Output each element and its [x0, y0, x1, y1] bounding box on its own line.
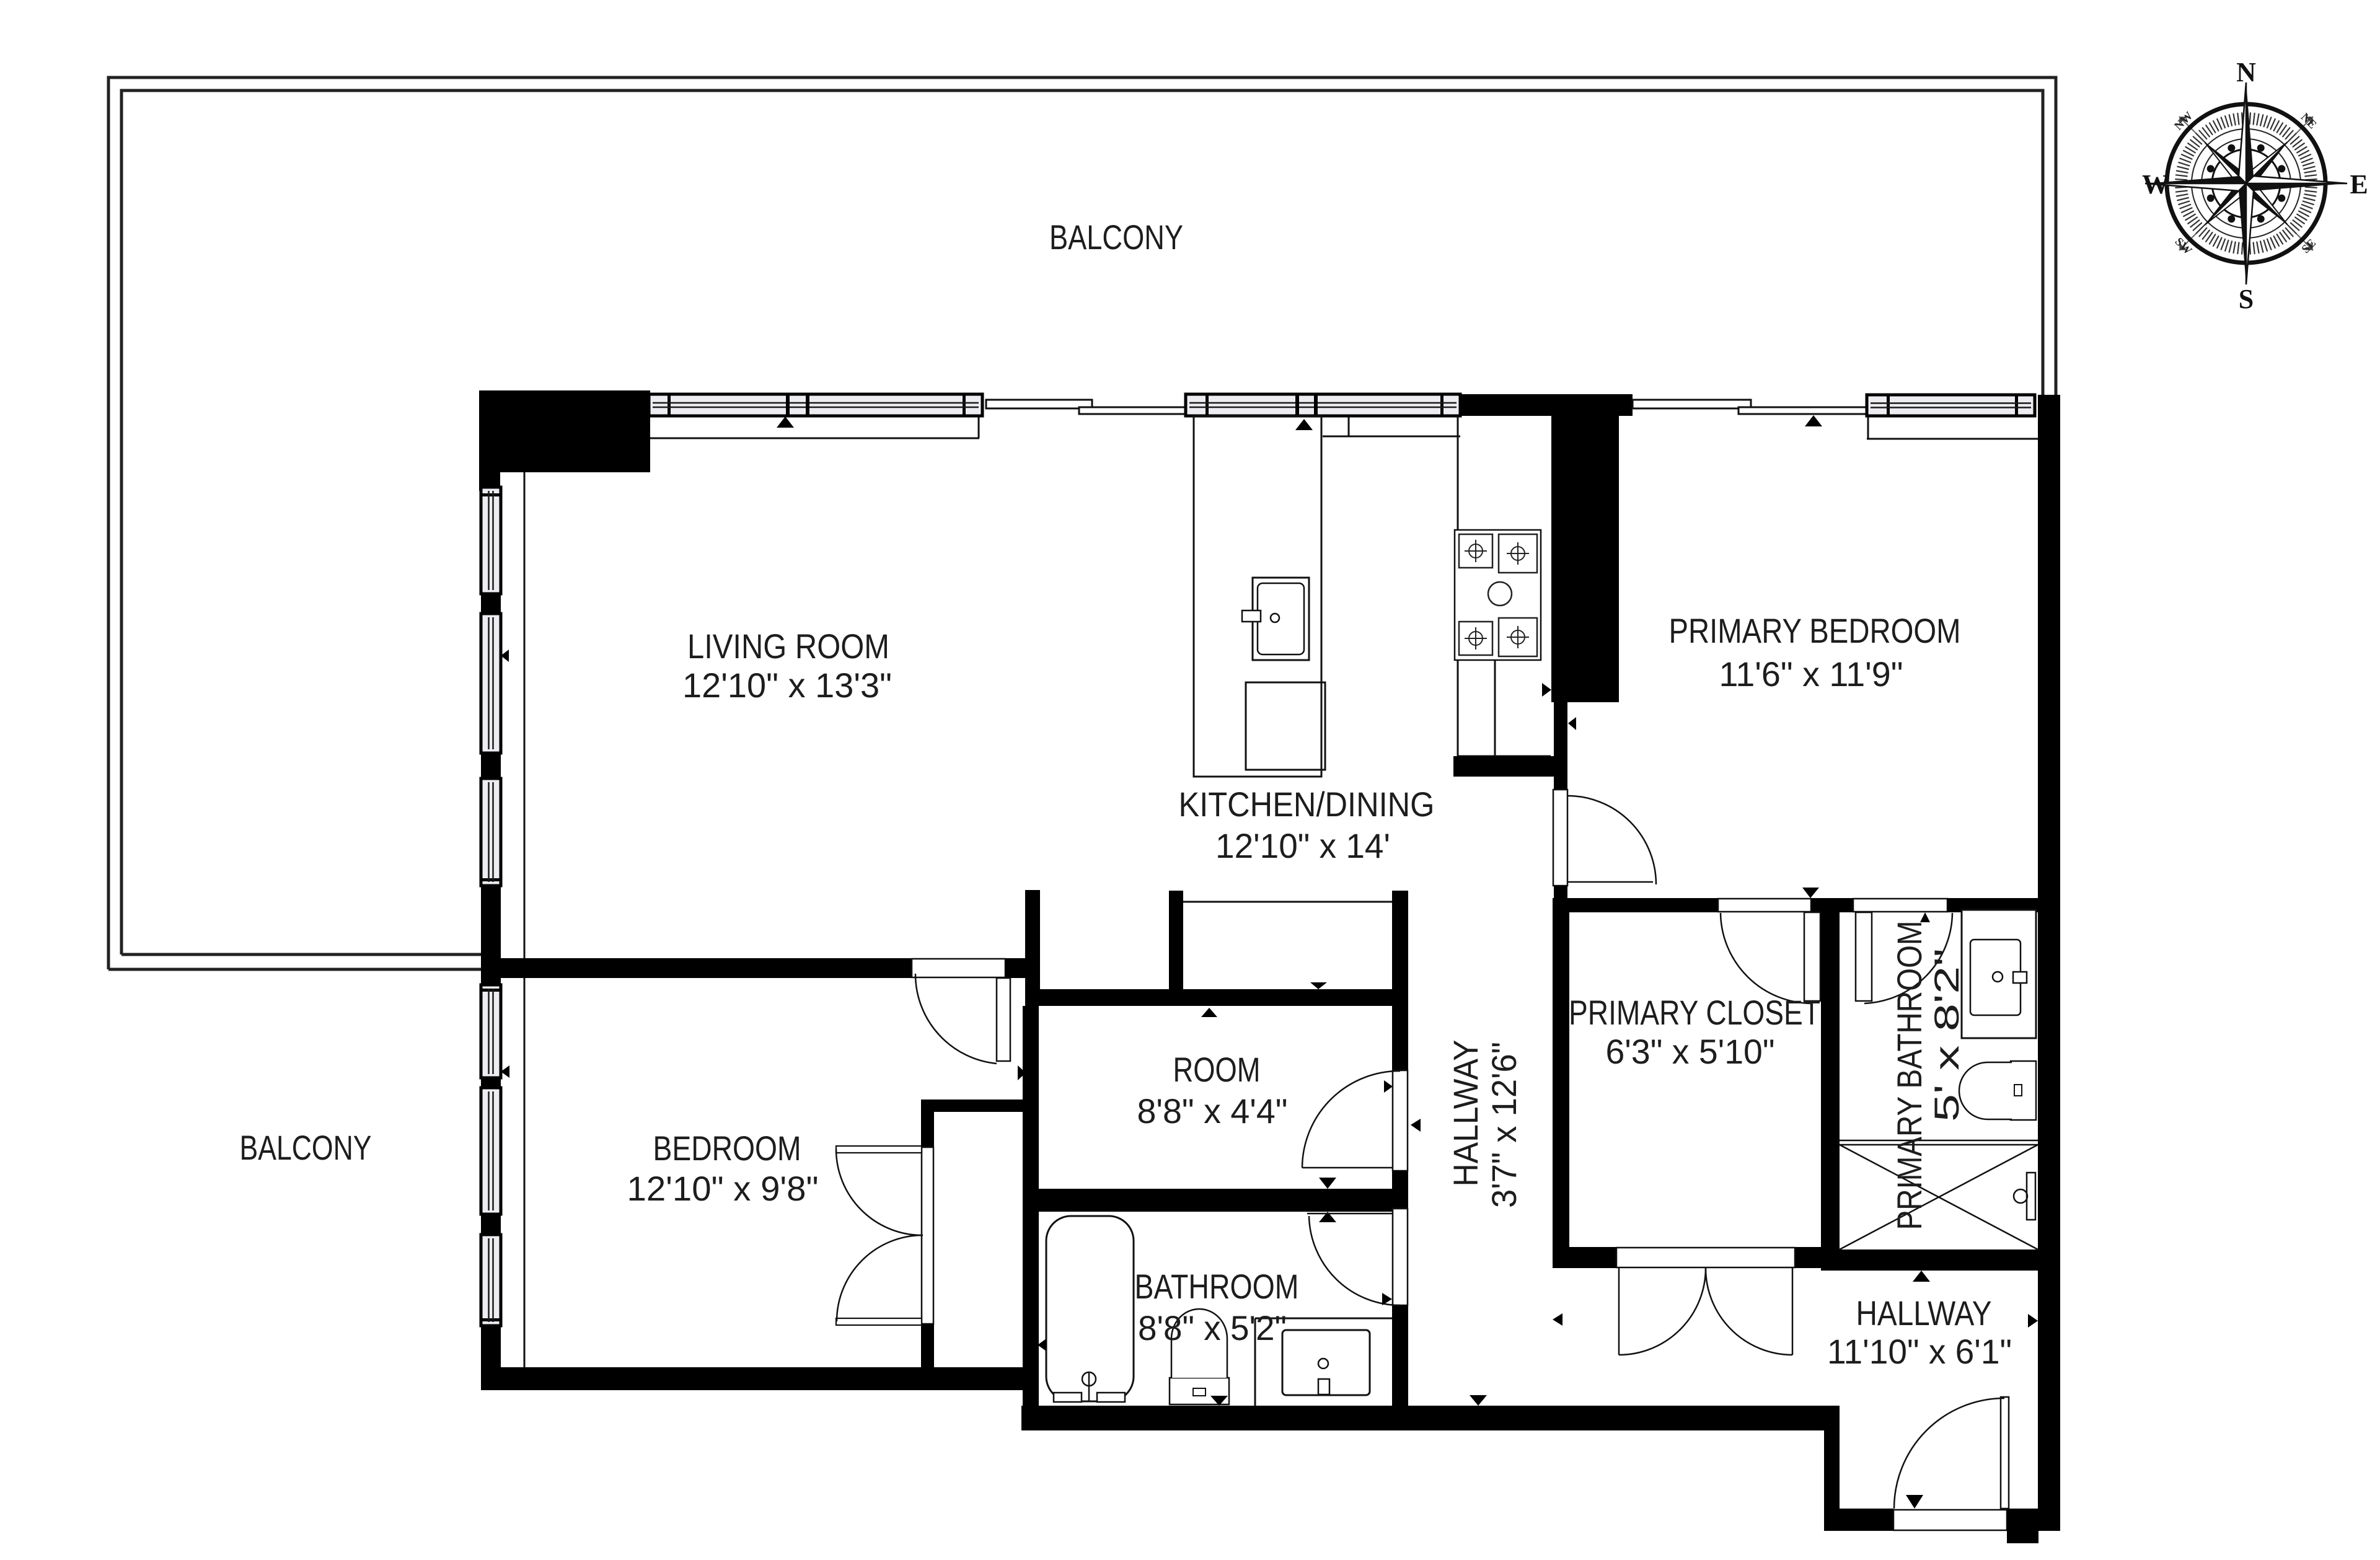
- svg-text:6'3" x 5'10": 6'3" x 5'10": [1606, 1032, 1775, 1071]
- svg-text:BATHROOM: BATHROOM: [1135, 1267, 1299, 1306]
- svg-text:LIVING ROOM: LIVING ROOM: [687, 627, 889, 666]
- svg-text:12'10" x 14': 12'10" x 14': [1215, 826, 1390, 865]
- svg-text:BALCONY: BALCONY: [240, 1128, 372, 1167]
- svg-text:BEDROOM: BEDROOM: [653, 1129, 801, 1168]
- svg-text:11'6" x 11'9": 11'6" x 11'9": [1719, 654, 1903, 694]
- svg-text:12'10" x 13'3": 12'10" x 13'3": [682, 666, 892, 705]
- svg-text:PRIMARY CLOSET: PRIMARY CLOSET: [1569, 993, 1820, 1032]
- svg-text:N: N: [2236, 57, 2256, 87]
- svg-text:BALCONY: BALCONY: [1049, 218, 1183, 257]
- svg-text:KITCHEN/DINING: KITCHEN/DINING: [1179, 785, 1435, 824]
- svg-text:HALLWAY: HALLWAY: [1856, 1293, 1992, 1333]
- svg-text:ROOM: ROOM: [1173, 1050, 1261, 1089]
- svg-text:12'10" x 9'8": 12'10" x 9'8": [627, 1169, 819, 1208]
- svg-text:E: E: [2350, 169, 2368, 200]
- svg-text:W: W: [2142, 169, 2169, 200]
- svg-text:S: S: [2239, 284, 2254, 314]
- svg-text:HALLWAY: HALLWAY: [1446, 1040, 1485, 1187]
- svg-text:3'7" x 12'6": 3'7" x 12'6": [1484, 1042, 1523, 1208]
- svg-text:5' x 8'2": 5' x 8'2": [1927, 948, 1966, 1122]
- svg-text:PRIMARY BEDROOM: PRIMARY BEDROOM: [1669, 611, 1961, 650]
- svg-text:8'8" x 5'2": 8'8" x 5'2": [1138, 1308, 1287, 1347]
- svg-text:8'8" x 4'4": 8'8" x 4'4": [1137, 1091, 1288, 1130]
- svg-text:PRIMARY BATHROOM: PRIMARY BATHROOM: [1890, 921, 1929, 1230]
- svg-text:11'10" x 6'1": 11'10" x 6'1": [1827, 1332, 2012, 1371]
